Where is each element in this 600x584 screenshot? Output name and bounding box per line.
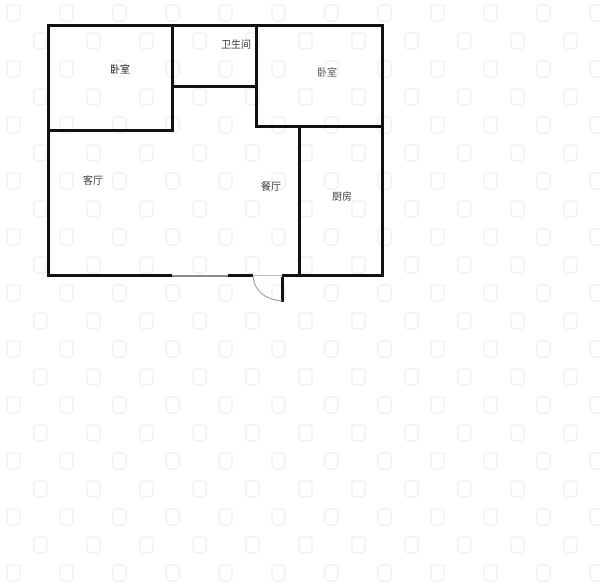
wall-bedroom-left-right-side: [171, 24, 174, 132]
door-swing-arc: [253, 277, 282, 301]
room-label-bedroom-left: 卧室: [110, 65, 130, 77]
floorplan-canvas: 卧室 卫生间 卧室 客厅 餐厅 厨房: [0, 0, 600, 584]
room-label-kitchen: 厨房: [332, 192, 352, 204]
wall-bedroom-left-bottom: [47, 129, 174, 132]
wall-dining-kitchen-divider: [298, 125, 301, 277]
room-label-living-room: 客厅: [83, 176, 103, 188]
door-opening: [253, 275, 282, 276]
wall-top: [47, 24, 384, 27]
wall-bathroom-bottom: [171, 85, 258, 88]
floorplan-diagram: 卧室 卫生间 卧室 客厅 餐厅 厨房: [0, 0, 600, 584]
wall-bottom-middle: [228, 274, 253, 277]
wall-bedroom-right-bottom: [255, 125, 384, 128]
room-label-dining-room: 餐厅: [261, 182, 281, 194]
wall-right: [381, 24, 384, 277]
wall-bathroom-right: [255, 24, 258, 128]
room-label-bedroom-right: 卧室: [317, 68, 337, 80]
wall-bottom-left: [47, 274, 172, 277]
room-label-bathroom: 卫生间: [221, 40, 251, 52]
window-bottom: [172, 275, 228, 277]
wall-left: [47, 24, 50, 277]
